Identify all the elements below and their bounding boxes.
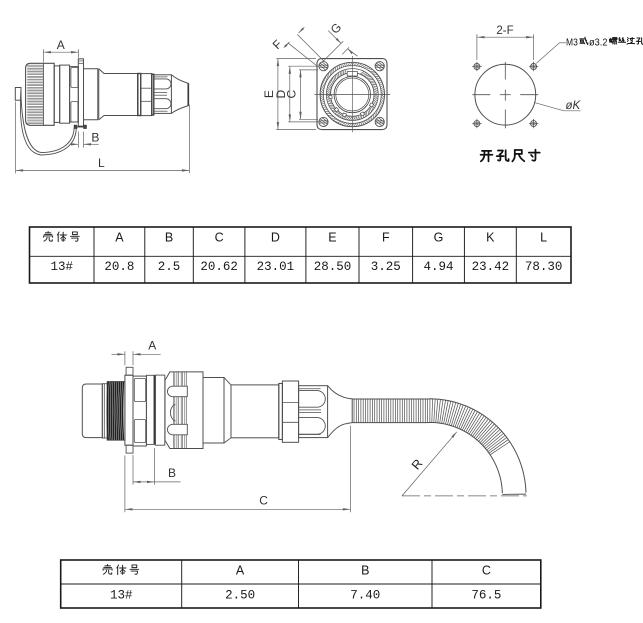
svg-text:13#: 13# xyxy=(110,589,133,603)
svg-text:23.01: 23.01 xyxy=(257,260,295,274)
svg-text:76.5: 76.5 xyxy=(471,589,501,603)
svg-text:13#: 13# xyxy=(50,260,73,274)
svg-text:A: A xyxy=(236,564,245,578)
svg-text:23.42: 23.42 xyxy=(472,260,510,274)
svg-text:78.30: 78.30 xyxy=(525,260,563,274)
svg-text:A: A xyxy=(57,38,65,52)
svg-text:øK: øK xyxy=(566,100,582,112)
svg-text:20.8: 20.8 xyxy=(104,260,134,274)
svg-text:28.50: 28.50 xyxy=(314,260,352,274)
svg-text:2-F: 2-F xyxy=(496,25,513,37)
svg-text:C: C xyxy=(215,231,224,245)
svg-text:3.25: 3.25 xyxy=(371,260,401,274)
svg-text:A: A xyxy=(115,231,124,245)
svg-text:M3: M3 xyxy=(566,37,578,49)
svg-text:F: F xyxy=(382,231,390,245)
svg-text:A: A xyxy=(148,338,156,352)
svg-text:2.5: 2.5 xyxy=(158,260,181,274)
svg-text:B: B xyxy=(168,466,176,480)
svg-text:B: B xyxy=(165,231,173,245)
svg-text:B: B xyxy=(361,564,369,578)
svg-text:C: C xyxy=(259,493,268,507)
svg-text:B: B xyxy=(91,131,99,145)
svg-text:E: E xyxy=(328,231,336,245)
svg-text:L: L xyxy=(98,156,105,170)
svg-text:7.40: 7.40 xyxy=(350,589,380,603)
svg-text:20.62: 20.62 xyxy=(200,260,238,274)
svg-text:4.94: 4.94 xyxy=(423,260,453,274)
svg-text:C: C xyxy=(285,89,299,98)
svg-text:D: D xyxy=(271,231,280,245)
svg-text:L: L xyxy=(540,231,547,245)
svg-text:C: C xyxy=(482,564,491,578)
svg-text:G: G xyxy=(434,231,444,245)
svg-text:K: K xyxy=(486,231,495,245)
svg-text:2.50: 2.50 xyxy=(225,589,255,603)
svg-text:ø3.2: ø3.2 xyxy=(589,37,608,49)
